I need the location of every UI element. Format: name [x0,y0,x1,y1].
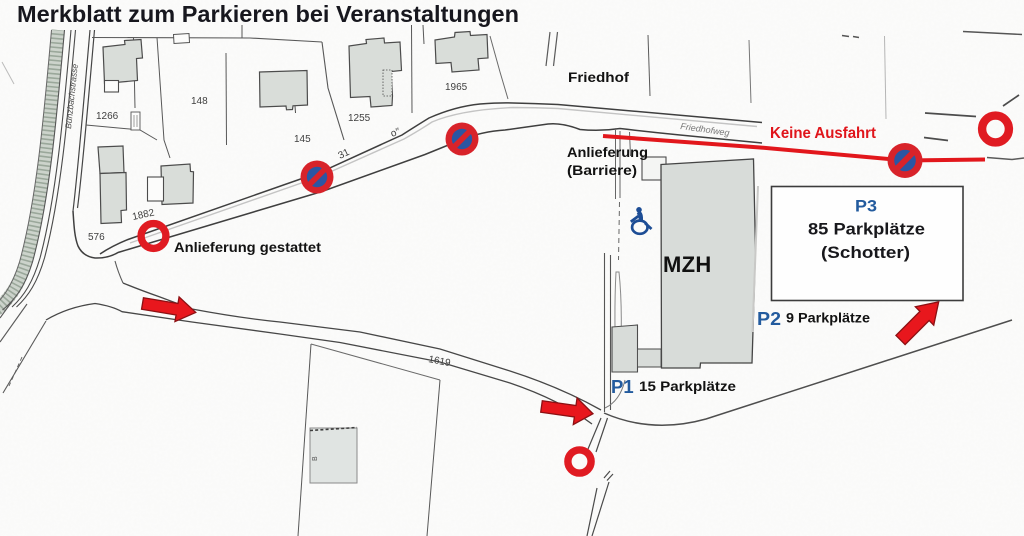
svg-text:P3: P3 [855,197,877,216]
svg-text:576: 576 [88,232,105,243]
svg-text:1965: 1965 [445,82,468,93]
svg-text:MZH: MZH [663,252,712,277]
svg-text:(Barriere): (Barriere) [567,163,637,178]
svg-text:15 Parkplätze: 15 Parkplätze [639,379,737,394]
svg-text:Anlieferung: Anlieferung [567,145,648,160]
svg-text:Keine Ausfahrt: Keine Ausfahrt [770,125,877,142]
svg-text:1255: 1255 [348,113,371,124]
svg-text:148: 148 [191,96,208,107]
svg-text:Merkblatt zum Parkieren bei Ve: Merkblatt zum Parkieren bei Veranstaltun… [17,1,519,27]
svg-text:85 Parkplätze: 85 Parkplätze [808,220,925,239]
svg-text:145: 145 [294,134,311,145]
svg-text:9 Parkplätze: 9 Parkplätze [786,311,871,326]
svg-text:P2: P2 [757,308,781,329]
svg-text:P1: P1 [611,376,634,397]
svg-text:Anlieferung gestattet: Anlieferung gestattet [174,240,322,255]
svg-text:(Schotter): (Schotter) [821,243,910,262]
svg-text:1266: 1266 [96,111,119,122]
svg-text:B: B [312,456,319,461]
svg-text:Friedhof: Friedhof [568,70,630,85]
